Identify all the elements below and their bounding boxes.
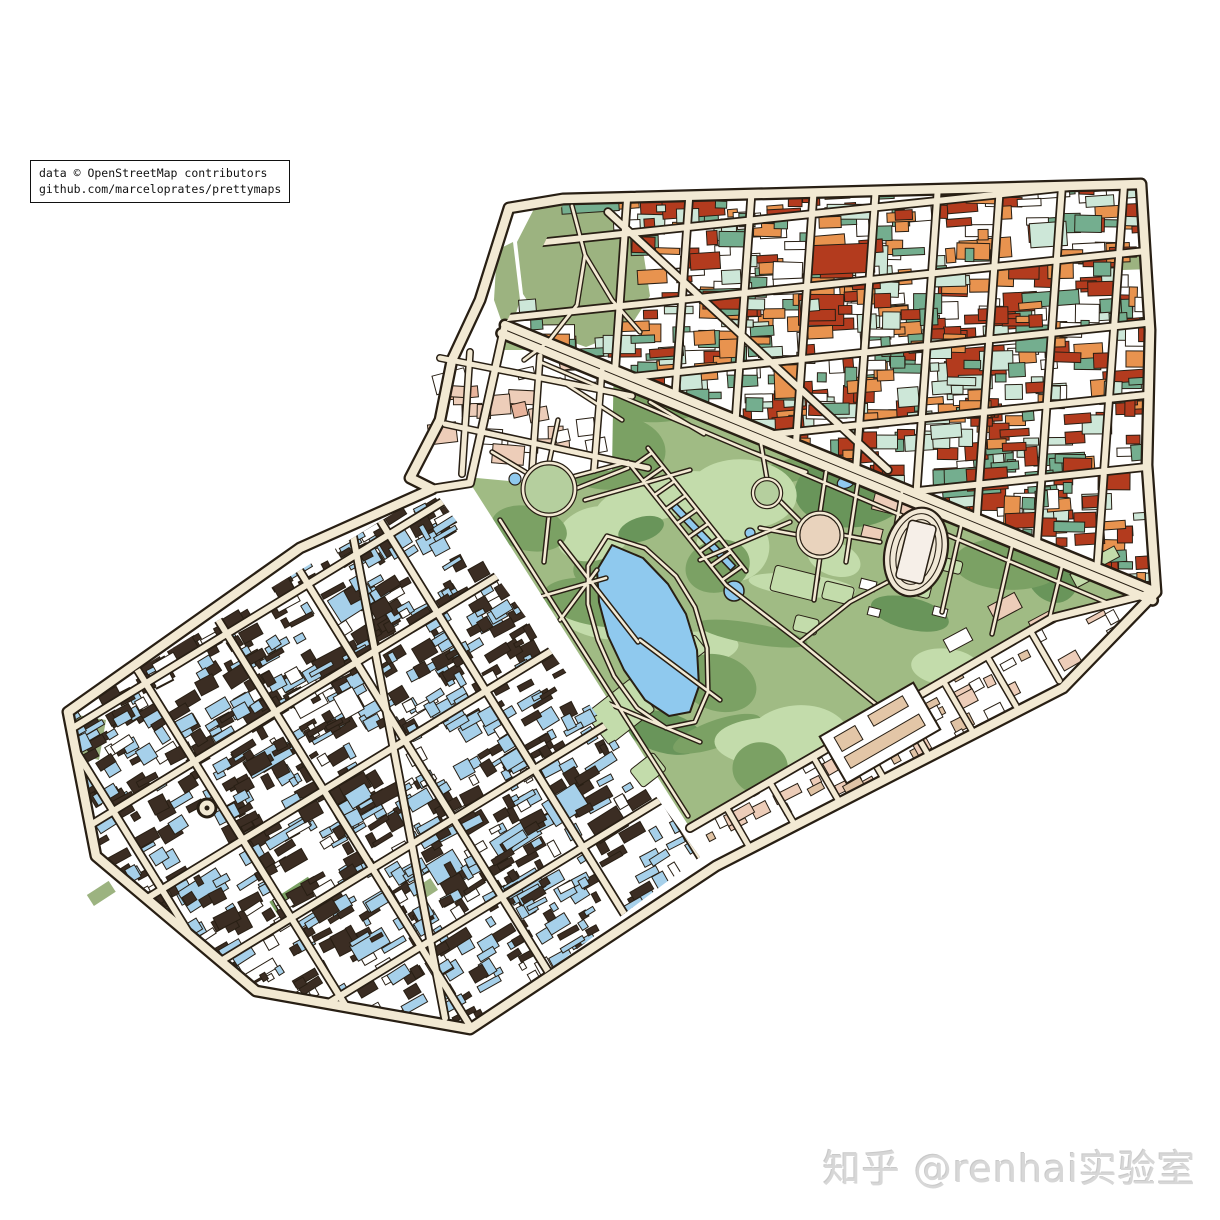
- attribution-line-1: data © OpenStreetMap contributors: [39, 165, 281, 181]
- attribution-line-2: github.com/marceloprates/prettymaps: [39, 181, 281, 197]
- map-stage: data © OpenStreetMap contributors github…: [0, 0, 1220, 1220]
- pond: [509, 473, 521, 485]
- attribution-box: data © OpenStreetMap contributors github…: [30, 160, 290, 203]
- watermark-text: 知乎 @renhai实验室: [823, 1138, 1196, 1193]
